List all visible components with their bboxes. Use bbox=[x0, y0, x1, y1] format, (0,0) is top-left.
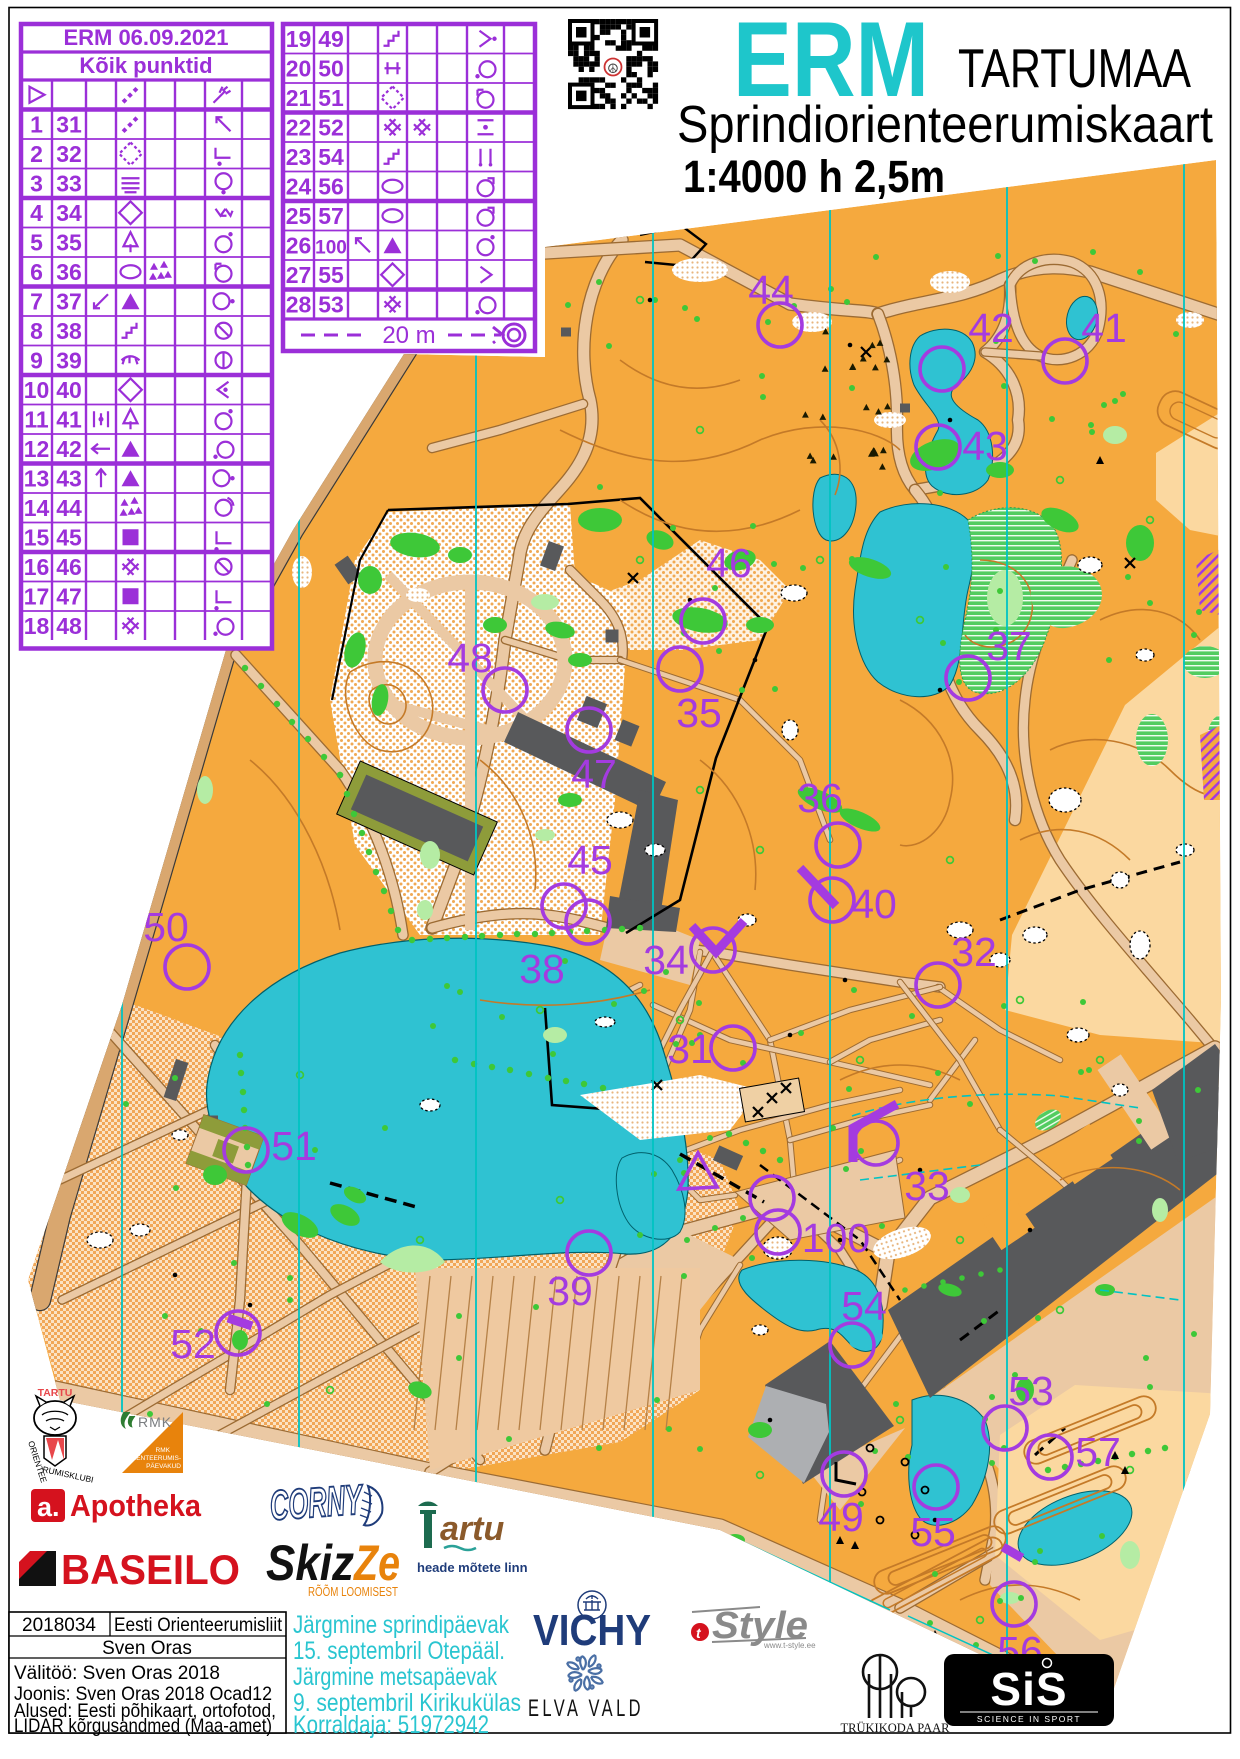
svg-text:25: 25 bbox=[286, 203, 312, 229]
svg-text:6: 6 bbox=[30, 259, 43, 285]
svg-text:heade mõtete linn: heade mõtete linn bbox=[417, 1560, 528, 1575]
svg-text:24: 24 bbox=[286, 173, 312, 199]
svg-text:51: 51 bbox=[271, 1123, 317, 1169]
svg-text:100: 100 bbox=[315, 237, 347, 258]
svg-text:PÄEVAKUD: PÄEVAKUD bbox=[146, 1462, 181, 1470]
svg-text:44: 44 bbox=[56, 495, 82, 521]
svg-text:45: 45 bbox=[56, 524, 82, 550]
svg-text:51: 51 bbox=[318, 85, 344, 111]
svg-text:Välitöö: Sven Oras 2018: Välitöö: Sven Oras 2018 bbox=[14, 1663, 220, 1684]
svg-text:2018034: 2018034 bbox=[22, 1615, 96, 1636]
svg-text:50: 50 bbox=[143, 904, 189, 950]
svg-text:www.t-style.ee: www.t-style.ee bbox=[763, 1641, 816, 1650]
svg-text:47: 47 bbox=[56, 583, 82, 609]
svg-text:CORNY: CORNY bbox=[268, 1476, 365, 1529]
svg-text:22: 22 bbox=[286, 114, 312, 140]
svg-text:40: 40 bbox=[851, 881, 897, 927]
svg-text:31: 31 bbox=[667, 1026, 713, 1072]
svg-text:19: 19 bbox=[286, 26, 312, 52]
svg-text:21: 21 bbox=[286, 85, 312, 111]
svg-text:39: 39 bbox=[56, 347, 82, 373]
svg-text:41: 41 bbox=[56, 406, 82, 432]
svg-text:32: 32 bbox=[951, 929, 997, 975]
svg-text:38: 38 bbox=[56, 318, 82, 344]
svg-text:ORIENTEERUMIS-: ORIENTEERUMIS- bbox=[125, 1455, 181, 1462]
svg-text:52: 52 bbox=[170, 1321, 216, 1367]
svg-text:20: 20 bbox=[286, 55, 312, 81]
svg-text:9: 9 bbox=[30, 347, 43, 373]
svg-text:TARTU: TARTU bbox=[38, 1387, 73, 1399]
svg-text:13: 13 bbox=[24, 465, 50, 491]
svg-text:49: 49 bbox=[318, 26, 344, 52]
svg-text:Korraldaja: 51972942: Korraldaja: 51972942 bbox=[293, 1711, 489, 1739]
svg-text:52: 52 bbox=[318, 114, 344, 140]
svg-text:RMK: RMK bbox=[138, 1414, 172, 1430]
svg-text:artu: artu bbox=[440, 1510, 504, 1548]
svg-text:54: 54 bbox=[841, 1283, 887, 1329]
svg-text:26: 26 bbox=[286, 232, 312, 258]
svg-text:53: 53 bbox=[1008, 1368, 1054, 1414]
svg-text:18: 18 bbox=[24, 613, 50, 639]
svg-text:37: 37 bbox=[56, 288, 82, 314]
svg-text:Sven Oras: Sven Oras bbox=[102, 1638, 192, 1659]
svg-text:7: 7 bbox=[30, 288, 43, 314]
svg-text:BASEILO: BASEILO bbox=[61, 1546, 240, 1593]
svg-text:Ze: Ze bbox=[352, 1535, 400, 1591]
svg-text:Eesti Orienteerumisliit: Eesti Orienteerumisliit bbox=[114, 1615, 283, 1636]
svg-text:49: 49 bbox=[818, 1494, 864, 1540]
svg-text:15: 15 bbox=[24, 524, 50, 550]
svg-text:23: 23 bbox=[286, 144, 312, 170]
svg-text:42: 42 bbox=[56, 436, 82, 462]
svg-text:17: 17 bbox=[24, 583, 50, 609]
svg-text:12: 12 bbox=[24, 436, 50, 462]
svg-text:39: 39 bbox=[547, 1268, 593, 1314]
svg-text:RÕÕM LOOMISEST: RÕÕM LOOMISEST bbox=[308, 1584, 398, 1599]
svg-text:ERM 06.09.2021: ERM 06.09.2021 bbox=[63, 25, 228, 50]
svg-text:20 m: 20 m bbox=[382, 322, 435, 349]
svg-text:SCIENCE IN SPORT: SCIENCE IN SPORT bbox=[977, 1714, 1081, 1724]
svg-text:36: 36 bbox=[56, 259, 82, 285]
svg-text:35: 35 bbox=[56, 229, 82, 255]
svg-text:15. septembril Otepääl.: 15. septembril Otepääl. bbox=[293, 1637, 505, 1665]
svg-text:11: 11 bbox=[24, 406, 49, 432]
svg-text:10: 10 bbox=[24, 377, 50, 403]
svg-text:5: 5 bbox=[30, 229, 43, 255]
svg-text:Järgmine sprindipäevak: Järgmine sprindipäevak bbox=[293, 1611, 509, 1639]
svg-text:35: 35 bbox=[676, 690, 722, 736]
svg-text:TRÜKIKODA PAAR: TRÜKIKODA PAAR bbox=[841, 1721, 951, 1735]
svg-text:48: 48 bbox=[447, 635, 493, 681]
svg-text:34: 34 bbox=[56, 200, 82, 226]
svg-text:Sprindiorienteerumiskaart: Sprindiorienteerumiskaart bbox=[677, 96, 1213, 154]
svg-text:100: 100 bbox=[802, 1215, 870, 1261]
svg-text:VICHY: VICHY bbox=[533, 1606, 651, 1655]
svg-text:Skiz: Skiz bbox=[266, 1535, 354, 1591]
svg-text:34: 34 bbox=[643, 937, 689, 983]
svg-text:56: 56 bbox=[318, 173, 344, 199]
svg-text:44: 44 bbox=[748, 267, 794, 313]
svg-text:38: 38 bbox=[519, 946, 565, 992]
svg-text:28: 28 bbox=[286, 291, 312, 317]
svg-text:41: 41 bbox=[1081, 305, 1127, 351]
svg-text:32: 32 bbox=[56, 141, 82, 167]
svg-text:43: 43 bbox=[56, 465, 82, 491]
svg-text:LIDAR kõrgusandmed (Maa-amet): LIDAR kõrgusandmed (Maa-amet) bbox=[14, 1716, 272, 1737]
svg-text:ELVA VALD: ELVA VALD bbox=[528, 1695, 644, 1722]
svg-text:33: 33 bbox=[56, 170, 82, 196]
svg-text:1:4000 h 2,5m: 1:4000 h 2,5m bbox=[683, 151, 945, 202]
svg-text:Apotheka: Apotheka bbox=[70, 1488, 202, 1523]
svg-text:37: 37 bbox=[986, 623, 1032, 669]
svg-text:36: 36 bbox=[797, 775, 843, 821]
svg-text:RMK: RMK bbox=[156, 1447, 171, 1454]
svg-text:40: 40 bbox=[56, 377, 82, 403]
svg-text:57: 57 bbox=[318, 203, 344, 229]
svg-text:14: 14 bbox=[24, 495, 50, 521]
svg-text:27: 27 bbox=[286, 262, 312, 288]
svg-text:3: 3 bbox=[30, 170, 43, 196]
svg-text:57: 57 bbox=[1075, 1429, 1121, 1475]
svg-text:54: 54 bbox=[318, 144, 344, 170]
svg-text:45: 45 bbox=[567, 837, 613, 883]
svg-text:33: 33 bbox=[904, 1163, 950, 1209]
svg-text:TARTUMAA: TARTUMAA bbox=[958, 37, 1191, 99]
svg-text:55: 55 bbox=[318, 262, 344, 288]
svg-text:8: 8 bbox=[30, 318, 43, 344]
svg-text:48: 48 bbox=[56, 613, 82, 639]
svg-text:50: 50 bbox=[318, 55, 344, 81]
svg-text:Kõik punktid: Kõik punktid bbox=[79, 53, 212, 78]
svg-text:46: 46 bbox=[56, 554, 82, 580]
svg-text:53: 53 bbox=[318, 291, 344, 317]
svg-text:55: 55 bbox=[910, 1509, 956, 1555]
svg-text:16: 16 bbox=[24, 554, 50, 580]
svg-text:4: 4 bbox=[30, 200, 43, 226]
svg-text:a.: a. bbox=[37, 1492, 60, 1522]
svg-text:☮: ☮ bbox=[607, 61, 619, 76]
svg-text:2: 2 bbox=[30, 141, 43, 167]
svg-text:46: 46 bbox=[706, 540, 752, 586]
svg-text:42: 42 bbox=[968, 305, 1014, 351]
svg-text:Järgmine metsapäevak: Järgmine metsapäevak bbox=[293, 1663, 497, 1691]
svg-text:1: 1 bbox=[30, 111, 43, 137]
svg-text:31: 31 bbox=[56, 111, 82, 137]
svg-text:43: 43 bbox=[962, 423, 1008, 469]
svg-text:SiS: SiS bbox=[990, 1663, 1067, 1715]
svg-text:47: 47 bbox=[571, 751, 617, 797]
